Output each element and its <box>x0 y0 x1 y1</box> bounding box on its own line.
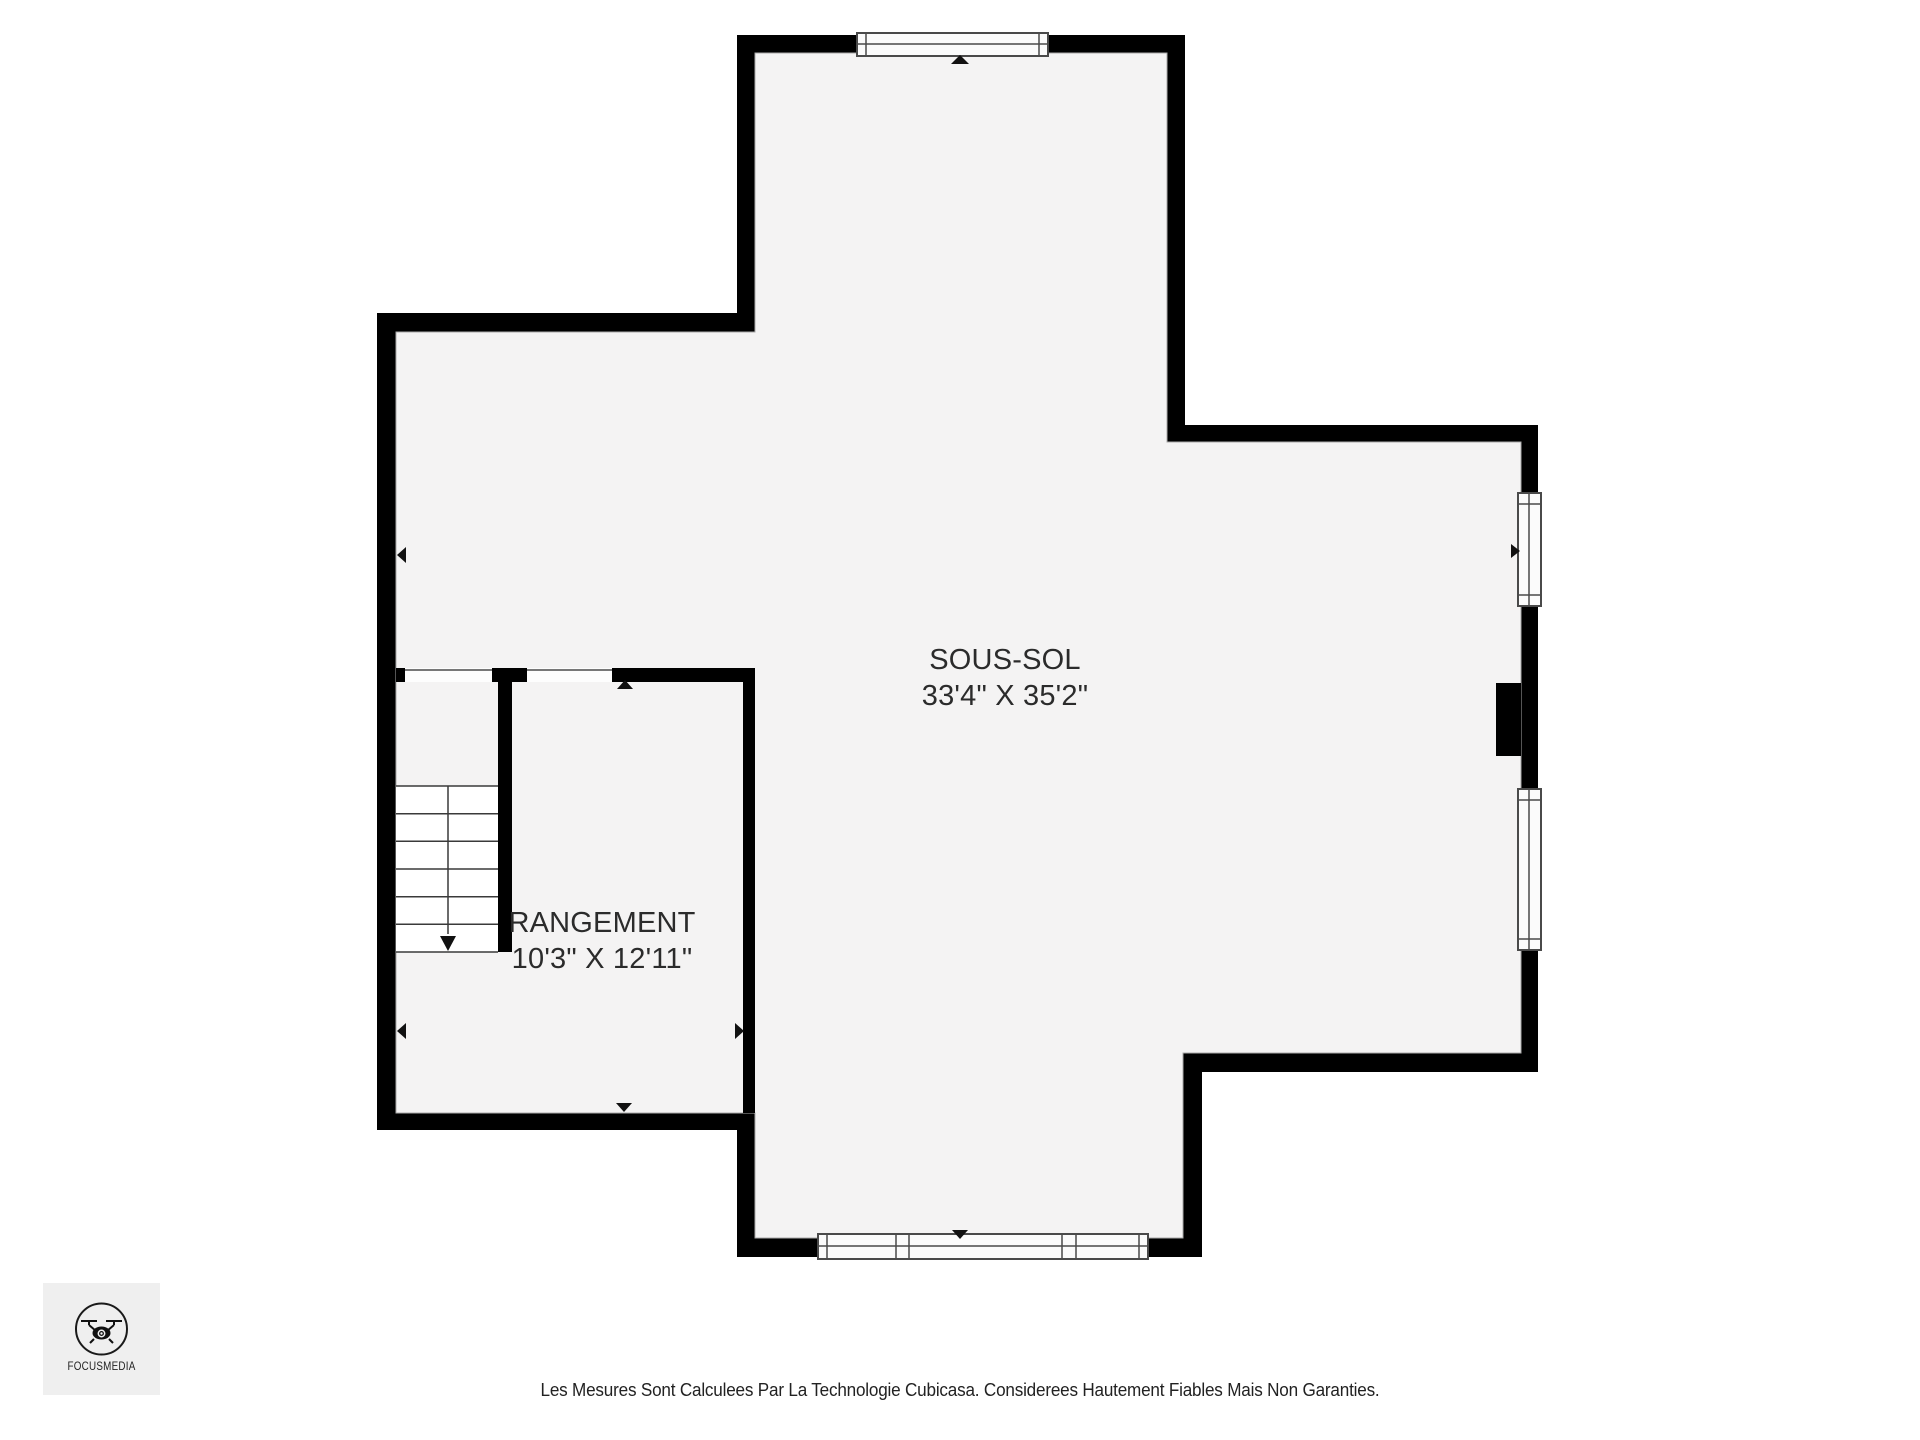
window-bottom-triple <box>818 1234 1148 1259</box>
window-right-lower <box>1518 789 1541 950</box>
drone-logo-icon <box>43 1283 160 1395</box>
floorplan-drawing <box>0 0 1920 1440</box>
room-label-rangement: RANGEMENT 10'3" X 12'11" <box>508 905 695 977</box>
room-name: SOUS-SOL <box>922 642 1089 678</box>
window-right-upper <box>1518 493 1541 606</box>
room-name: RANGEMENT <box>508 905 695 941</box>
disclaimer-text: Les Mesures Sont Calculees Par La Techno… <box>48 1380 1872 1401</box>
room-dimensions: 10'3" X 12'11" <box>508 941 695 977</box>
staircase <box>396 786 498 952</box>
logo-text: FOCUSMEDIA <box>54 1359 150 1373</box>
room-label-sous-sol: SOUS-SOL 33'4" X 35'2" <box>922 642 1089 714</box>
window-top <box>857 33 1048 56</box>
fireplace-bump <box>1496 683 1521 756</box>
floorplan-page: SOUS-SOL 33'4" X 35'2" RANGEMENT 10'3" X… <box>0 0 1920 1440</box>
room-dimensions: 33'4" X 35'2" <box>922 678 1089 714</box>
rangement-right-wall <box>743 668 755 1113</box>
focusmedia-logo: FOCUSMEDIA <box>43 1283 160 1395</box>
